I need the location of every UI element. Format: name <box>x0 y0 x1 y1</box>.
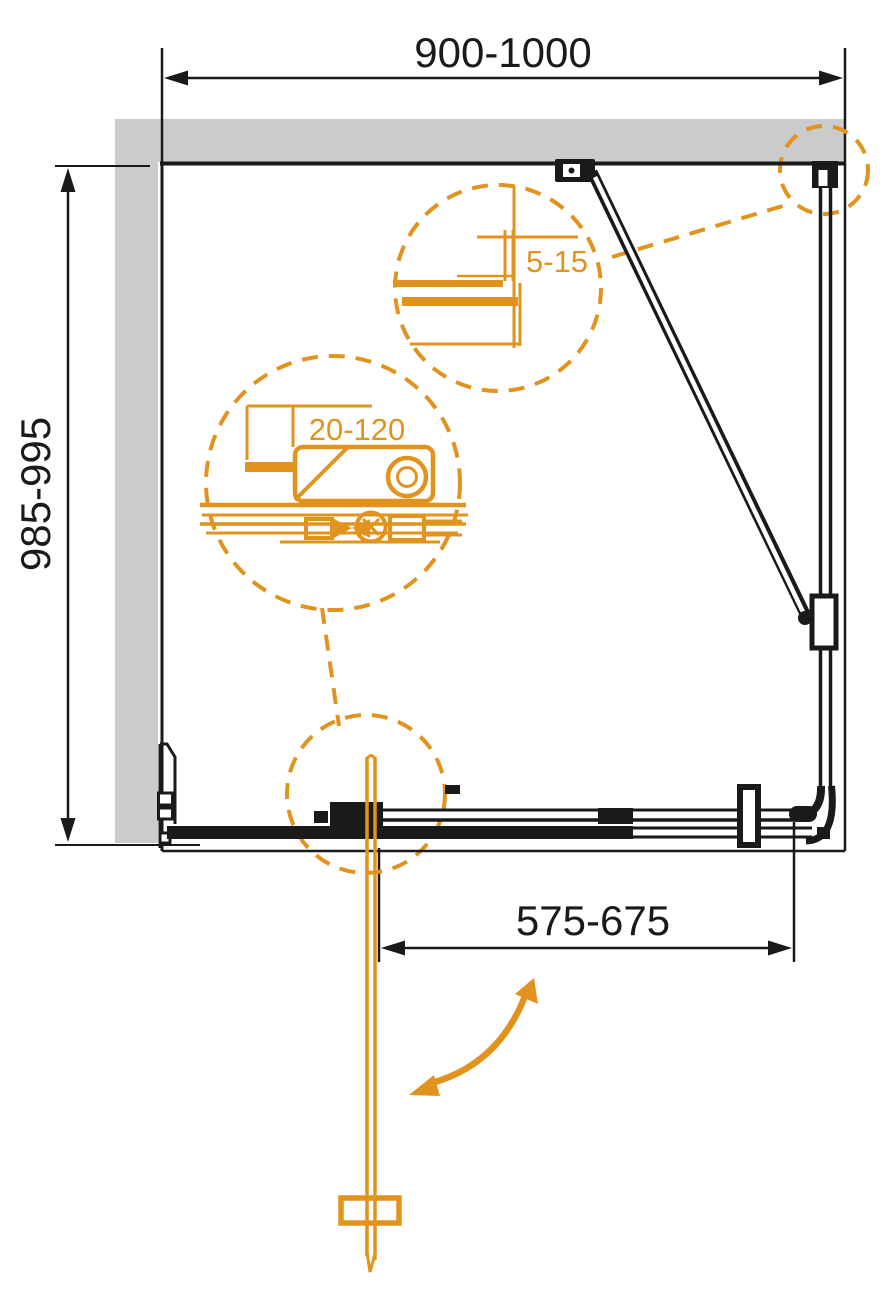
top-width-label: 900-1000 <box>414 29 592 76</box>
side-depth-label: 985-995 <box>12 417 59 571</box>
support-bar-panel-connector <box>812 596 836 648</box>
door-handle <box>740 787 758 845</box>
side-depth-dimension: 985-995 <box>12 166 200 845</box>
entry-width-dimension: 575-675 <box>379 822 794 962</box>
detail-roller-bracket-section: 20-120 <box>200 356 468 610</box>
detail-5-15-label: 5-15 <box>526 244 588 279</box>
detail-wall-profile-section: 5-15 <box>393 185 601 391</box>
fixed-panel-right <box>789 161 838 841</box>
swing-arrow <box>409 978 538 1096</box>
wall-left <box>115 119 158 843</box>
entry-width-label: 575-675 <box>516 897 670 944</box>
shower-enclosure-diagram: 900-1000 985-995 575-675 <box>0 0 894 1300</box>
door-handle-open <box>341 1198 399 1223</box>
door-latch-block <box>598 808 633 824</box>
bottom-track-assembly <box>159 744 813 848</box>
wall-top <box>115 119 845 162</box>
door-stop <box>445 785 460 794</box>
detail-20-120-label: 20-120 <box>309 412 406 447</box>
drawing-canvas: 900-1000 985-995 575-675 <box>0 0 894 1300</box>
